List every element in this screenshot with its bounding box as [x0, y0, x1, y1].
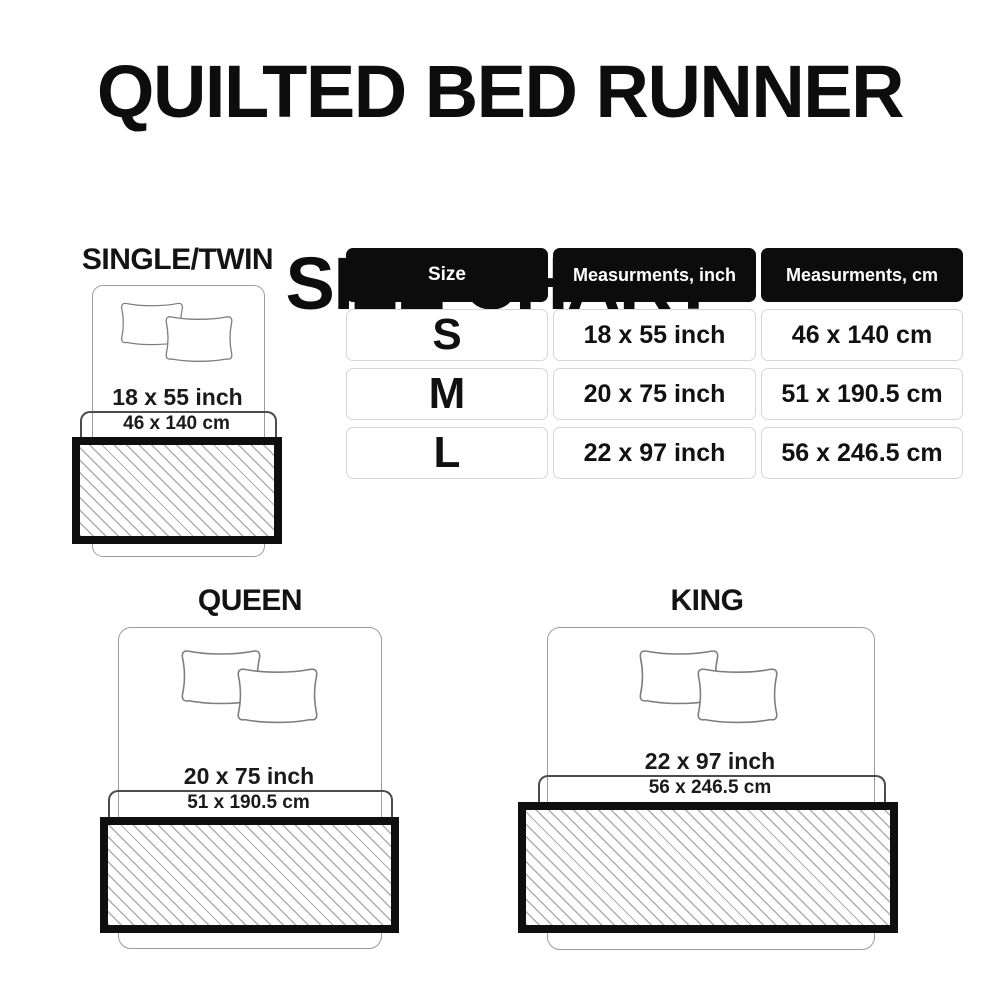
runner-swatch-king: [518, 802, 898, 933]
runner-swatch-queen: [100, 817, 399, 933]
table-cell-cm-m: 51 x 190.5 cm: [761, 368, 963, 420]
table-header-size: Size: [346, 248, 548, 302]
size-table: Size Measurments, inch Measurments, cm S…: [346, 248, 963, 479]
table-cell-inch-l: 22 x 97 inch: [553, 427, 756, 479]
table-header-cm: Measurments, cm: [761, 248, 963, 302]
section-label-single-twin: SINGLE/TWIN: [70, 243, 285, 277]
section-label-king: KING: [587, 584, 827, 618]
table-cell-inch-m: 20 x 75 inch: [553, 368, 756, 420]
table-header-inch: Measurments, inch: [553, 248, 756, 302]
dimension-inch-king: 22 x 97 inch: [547, 748, 873, 775]
runner-swatch-single-twin: [72, 437, 282, 544]
dimension-cm-single-twin: 46 x 140 cm: [80, 413, 273, 435]
section-label-queen: QUEEN: [130, 584, 370, 618]
dimension-inch-single-twin: 18 x 55 inch: [92, 384, 263, 411]
dimension-inch-queen: 20 x 75 inch: [118, 763, 380, 790]
dimension-cm-queen: 51 x 190.5 cm: [108, 792, 389, 814]
pillow-icon: [691, 661, 784, 728]
dimension-cm-king: 56 x 246.5 cm: [538, 777, 882, 799]
table-cell-size-s: S: [346, 309, 548, 361]
pillow-icon: [231, 661, 324, 728]
table-cell-size-m: M: [346, 368, 548, 420]
pillow-icon: [160, 310, 238, 366]
table-cell-cm-s: 46 x 140 cm: [761, 309, 963, 361]
table-cell-inch-s: 18 x 55 inch: [553, 309, 756, 361]
table-cell-size-l: L: [346, 427, 548, 479]
table-cell-cm-l: 56 x 246.5 cm: [761, 427, 963, 479]
page-title-line1: QUILTED BED RUNNER: [97, 50, 903, 133]
